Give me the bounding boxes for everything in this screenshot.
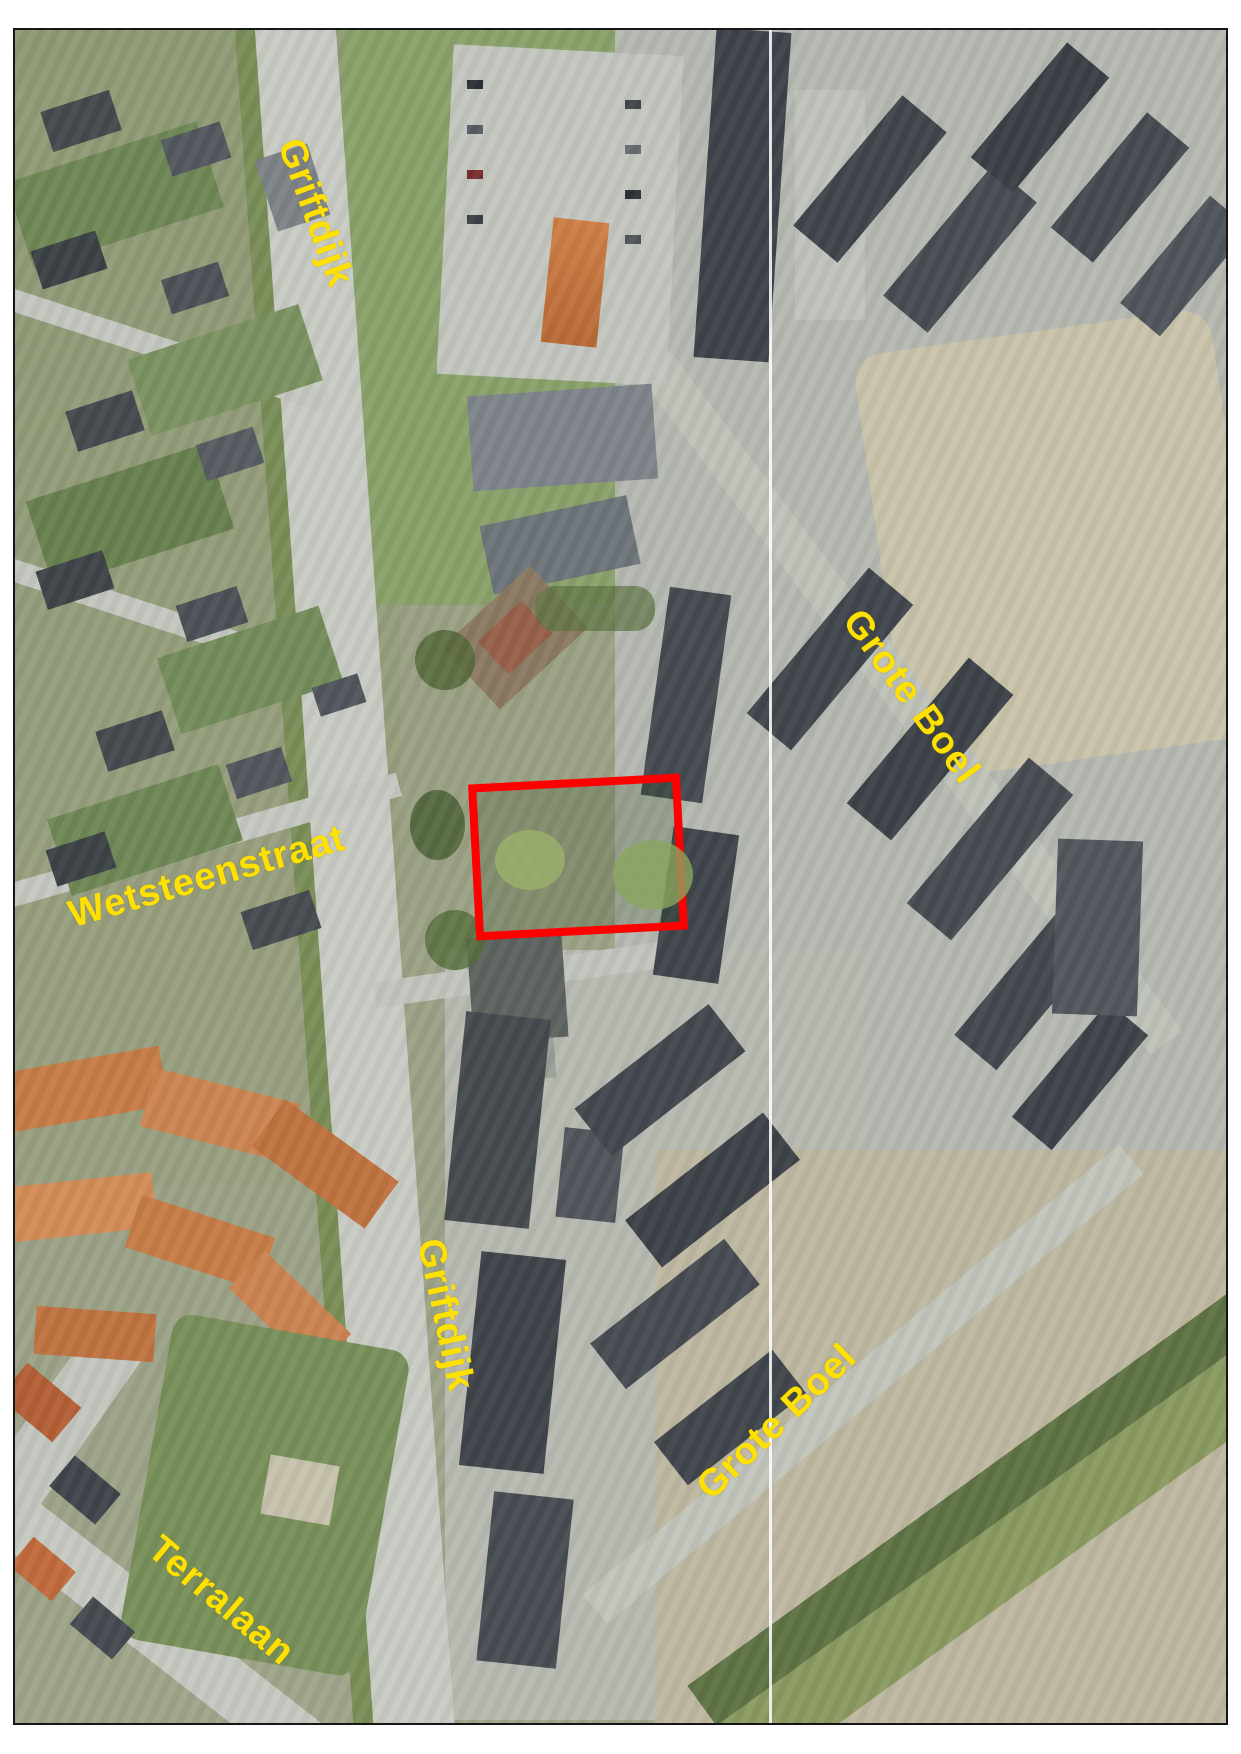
tree-shape — [415, 630, 475, 690]
car-shape — [467, 80, 483, 89]
playground-shape — [260, 1454, 339, 1525]
car-shape — [625, 100, 641, 109]
car-shape — [625, 190, 641, 199]
building-shape — [467, 384, 658, 492]
car-shape — [467, 125, 483, 134]
tree-shape — [410, 790, 465, 860]
tree-shape — [613, 840, 693, 910]
car-shape — [625, 235, 641, 244]
page: Griftdijk Wetsteenstraat Grote Boel Grif… — [0, 0, 1241, 1754]
tree-shape — [495, 830, 565, 890]
car-shape — [467, 170, 483, 179]
hedge-shape — [535, 586, 655, 631]
orange-terrace-row — [33, 1306, 156, 1362]
photo-seam-line — [769, 30, 772, 1723]
aerial-photo: Griftdijk Wetsteenstraat Grote Boel Grif… — [13, 28, 1228, 1725]
car-shape — [625, 145, 641, 154]
tall-building-east — [1052, 839, 1143, 1017]
car-shape — [467, 215, 483, 224]
